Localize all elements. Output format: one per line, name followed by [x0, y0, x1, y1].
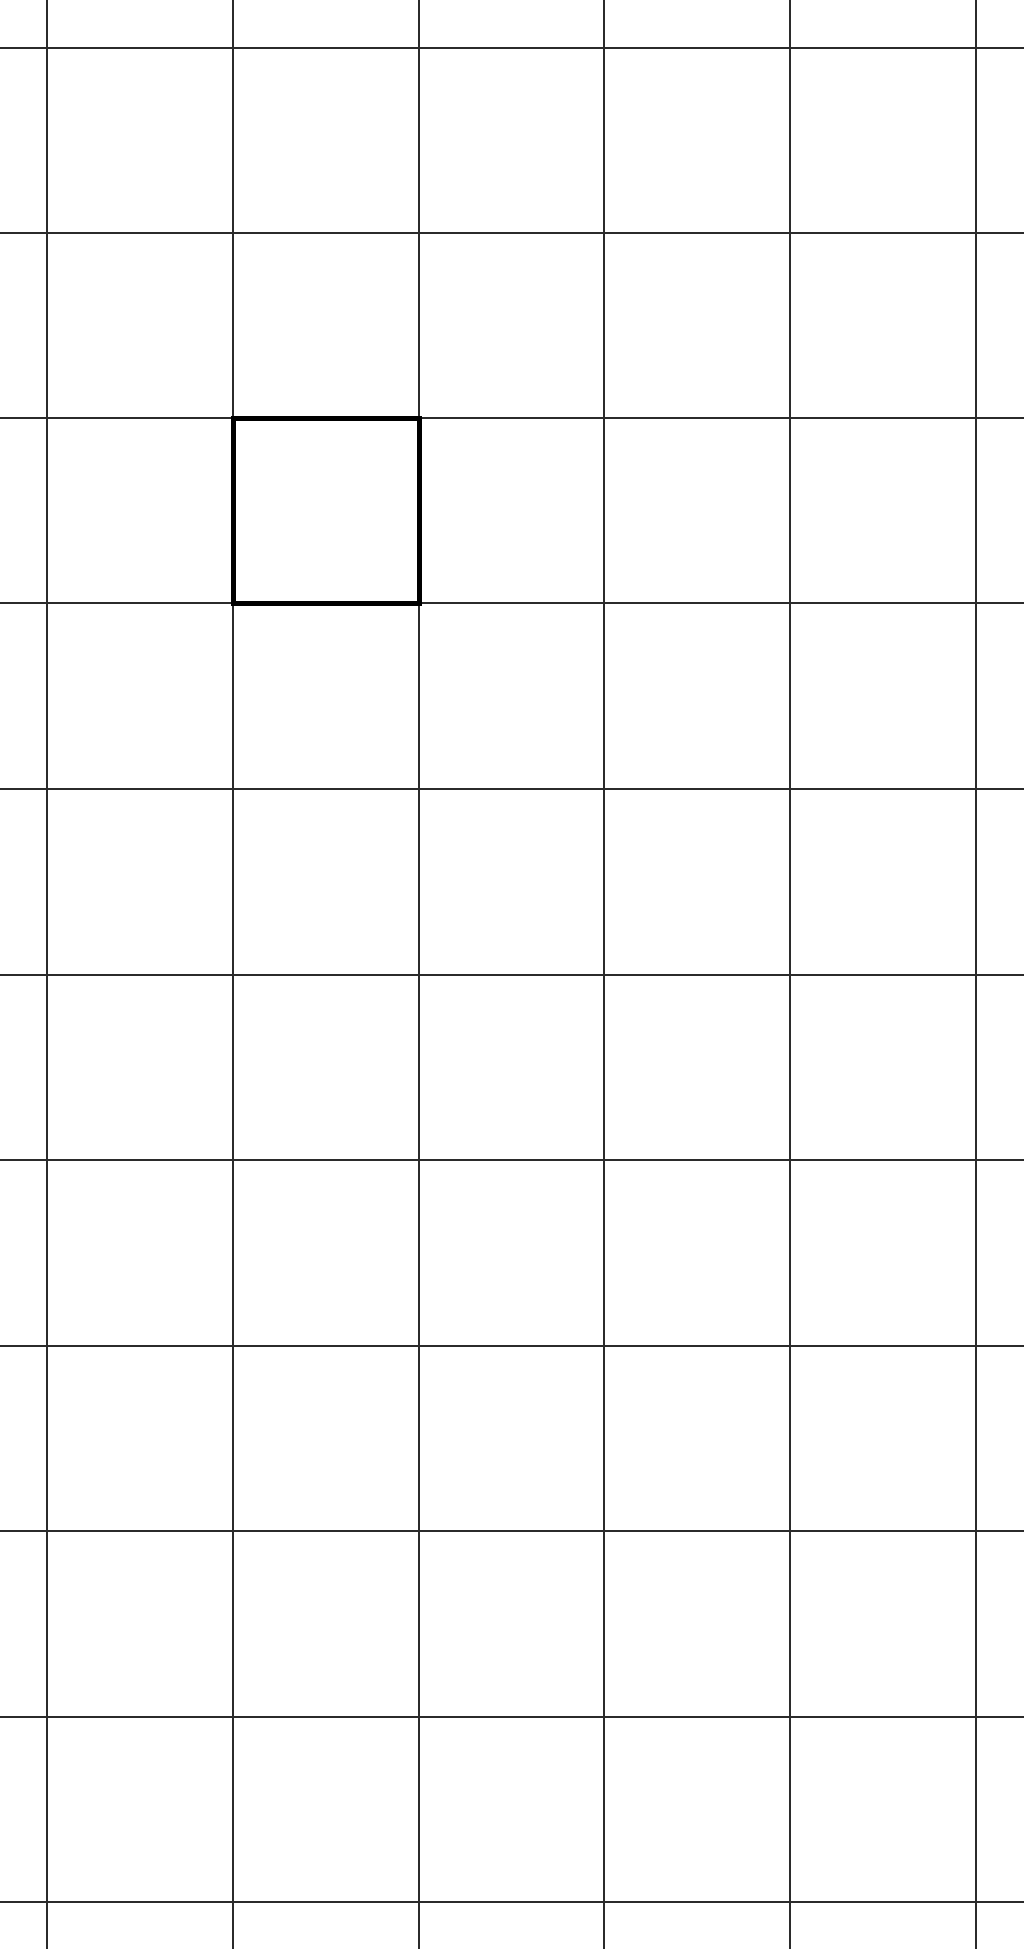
grid-line-horizontal — [0, 1901, 1024, 1903]
grid-line-horizontal — [0, 47, 1024, 49]
grid-board[interactable] — [0, 0, 1024, 1949]
grid-line-horizontal — [0, 602, 1024, 604]
grid-line-horizontal — [0, 788, 1024, 790]
grid-line-horizontal — [0, 417, 1024, 419]
highlighted-cell[interactable] — [231, 416, 422, 606]
grid-line-horizontal — [0, 974, 1024, 976]
grid-line-horizontal — [0, 232, 1024, 234]
grid-line-horizontal — [0, 1716, 1024, 1718]
grid-line-horizontal — [0, 1159, 1024, 1161]
grid-line-horizontal — [0, 1345, 1024, 1347]
grid-line-horizontal — [0, 1530, 1024, 1532]
